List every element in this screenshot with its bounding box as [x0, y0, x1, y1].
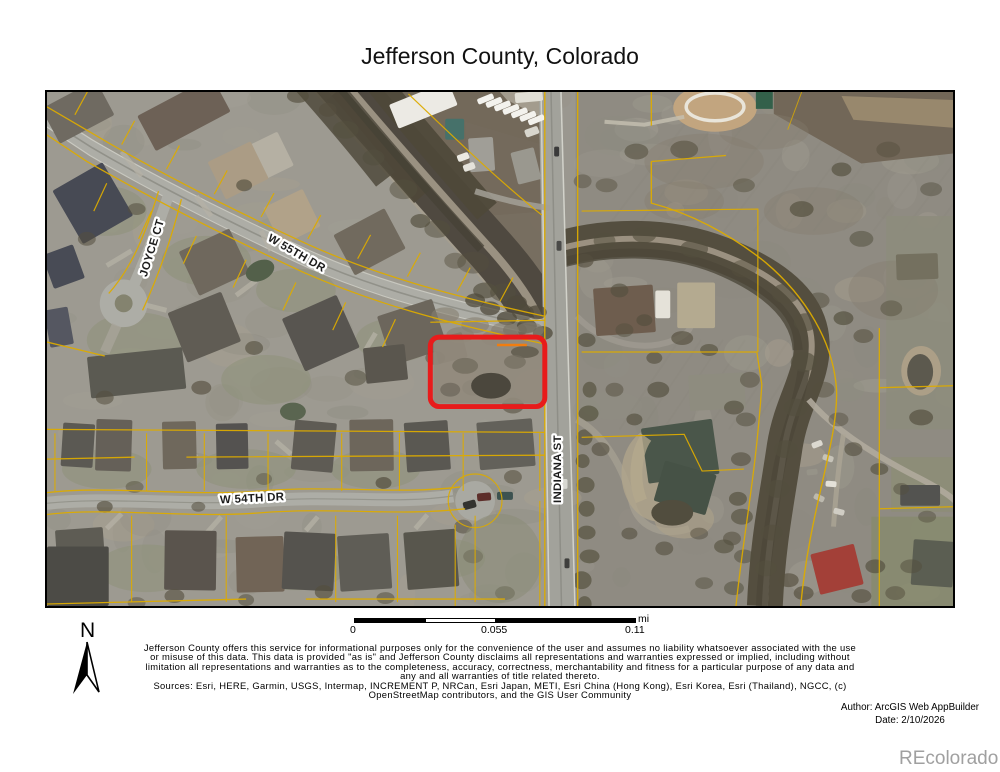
svg-text:INDIANA ST: INDIANA ST: [552, 435, 564, 503]
